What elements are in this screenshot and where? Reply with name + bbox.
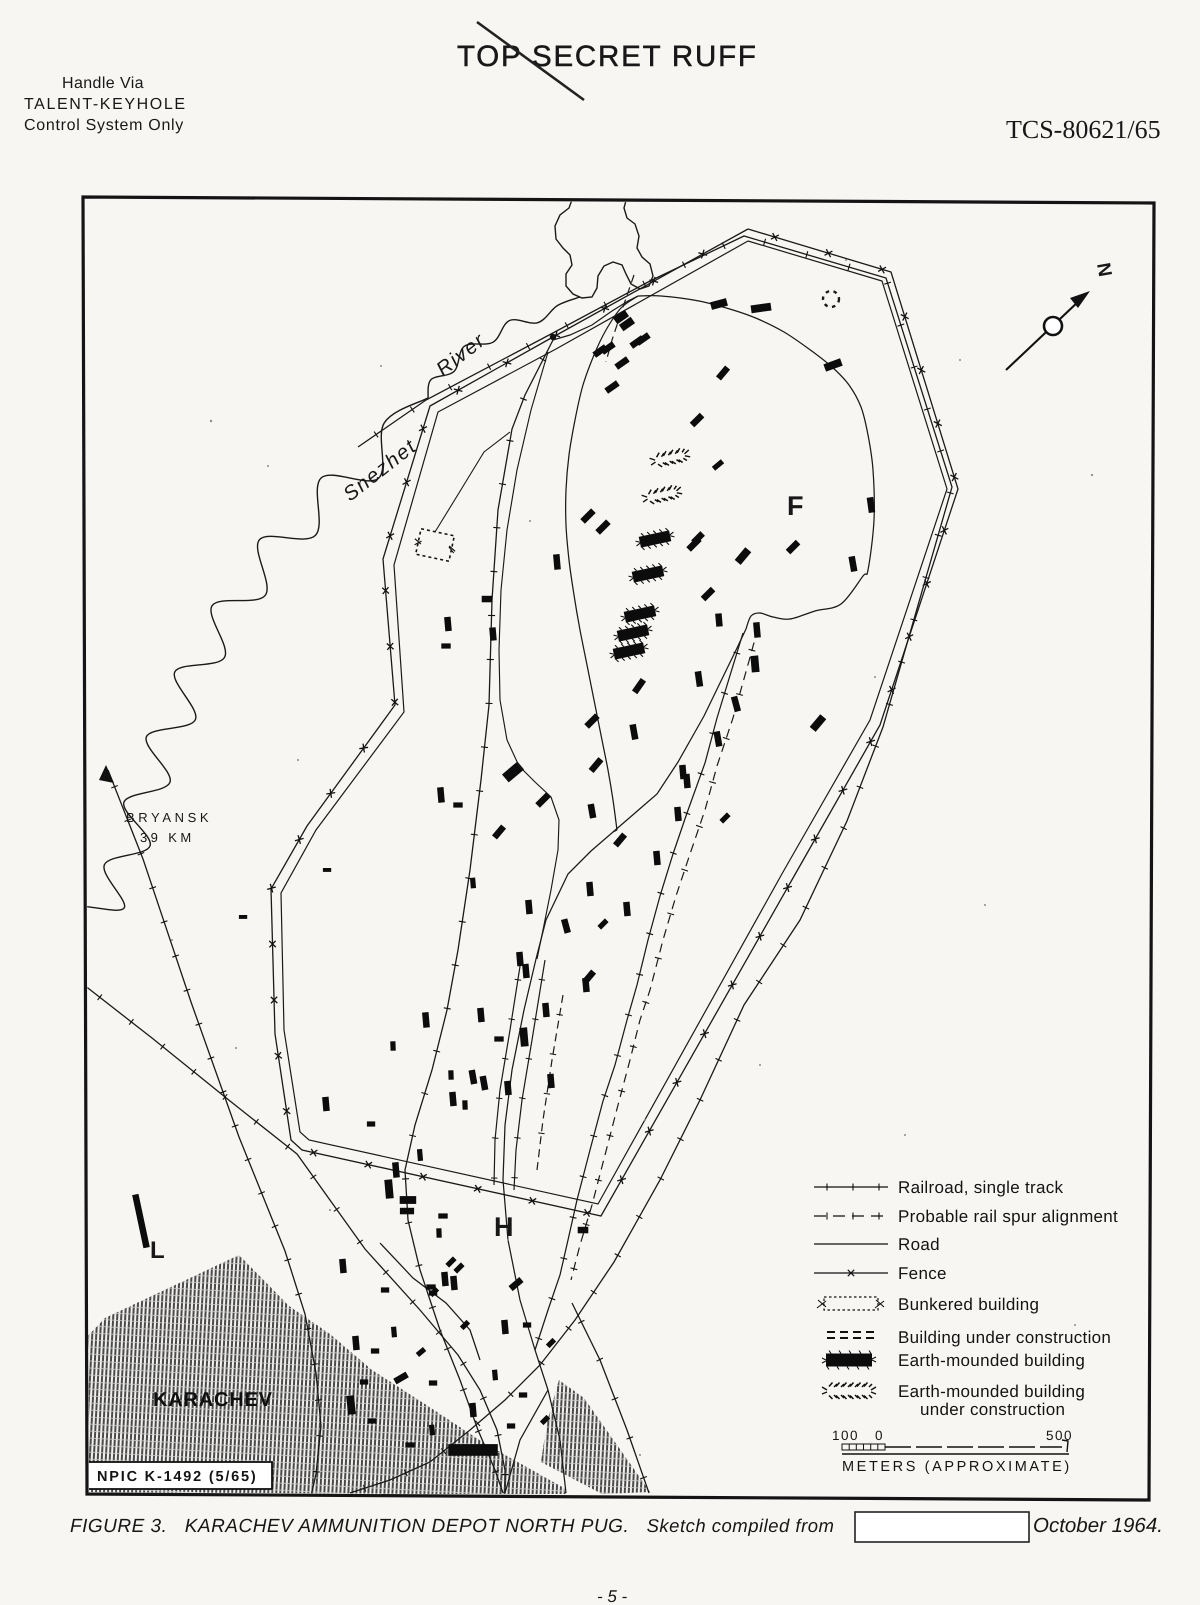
svg-text:Road: Road bbox=[898, 1235, 940, 1254]
svg-text:0: 0 bbox=[875, 1428, 883, 1443]
svg-text:October 1964.: October 1964. bbox=[1033, 1514, 1163, 1537]
svg-text:FIGURE 3. KARACHEV AMMUNITIO: FIGURE 3. KARACHEV AMMUNITION DEPOT NORT… bbox=[70, 1515, 834, 1537]
svg-text:39 KM: 39 KM bbox=[140, 830, 195, 845]
svg-text:TALENT-KEYHOLE: TALENT-KEYHOLE bbox=[24, 96, 187, 113]
svg-text:H: H bbox=[494, 1212, 514, 1242]
svg-text:Building under construction: Building under construction bbox=[898, 1328, 1111, 1347]
svg-text:Handle Via: Handle Via bbox=[62, 75, 144, 92]
svg-text:Fence: Fence bbox=[898, 1264, 947, 1283]
svg-text:METERS (APPROXIMATE): METERS (APPROXIMATE) bbox=[842, 1459, 1072, 1475]
svg-text:L: L bbox=[150, 1237, 165, 1264]
svg-text:Earth-mounded building: Earth-mounded building bbox=[898, 1382, 1085, 1401]
svg-text:Control System Only: Control System Only bbox=[24, 117, 184, 134]
svg-text:Railroad, single track: Railroad, single track bbox=[898, 1178, 1064, 1197]
svg-text:Bunkered building: Bunkered building bbox=[898, 1295, 1039, 1314]
svg-text:BRYANSK: BRYANSK bbox=[126, 810, 212, 825]
svg-text:F: F bbox=[787, 491, 804, 521]
svg-text:under construction: under construction bbox=[920, 1400, 1065, 1419]
svg-text:500: 500 bbox=[1046, 1428, 1073, 1443]
svg-text:NPIC K-1492 (5/65): NPIC K-1492 (5/65) bbox=[97, 1469, 258, 1485]
svg-text:Earth-mounded building: Earth-mounded building bbox=[898, 1351, 1085, 1370]
svg-text:TCS-80621/65: TCS-80621/65 bbox=[1006, 115, 1161, 144]
svg-text:Probable rail spur alignment: Probable rail spur alignment bbox=[898, 1207, 1118, 1226]
svg-text:TOP SECRET RUFF: TOP SECRET RUFF bbox=[457, 40, 758, 73]
svg-text:KARACHEV: KARACHEV bbox=[153, 1389, 273, 1411]
svg-text:- 5 -: - 5 - bbox=[597, 1587, 628, 1605]
svg-text:100: 100 bbox=[832, 1428, 859, 1443]
